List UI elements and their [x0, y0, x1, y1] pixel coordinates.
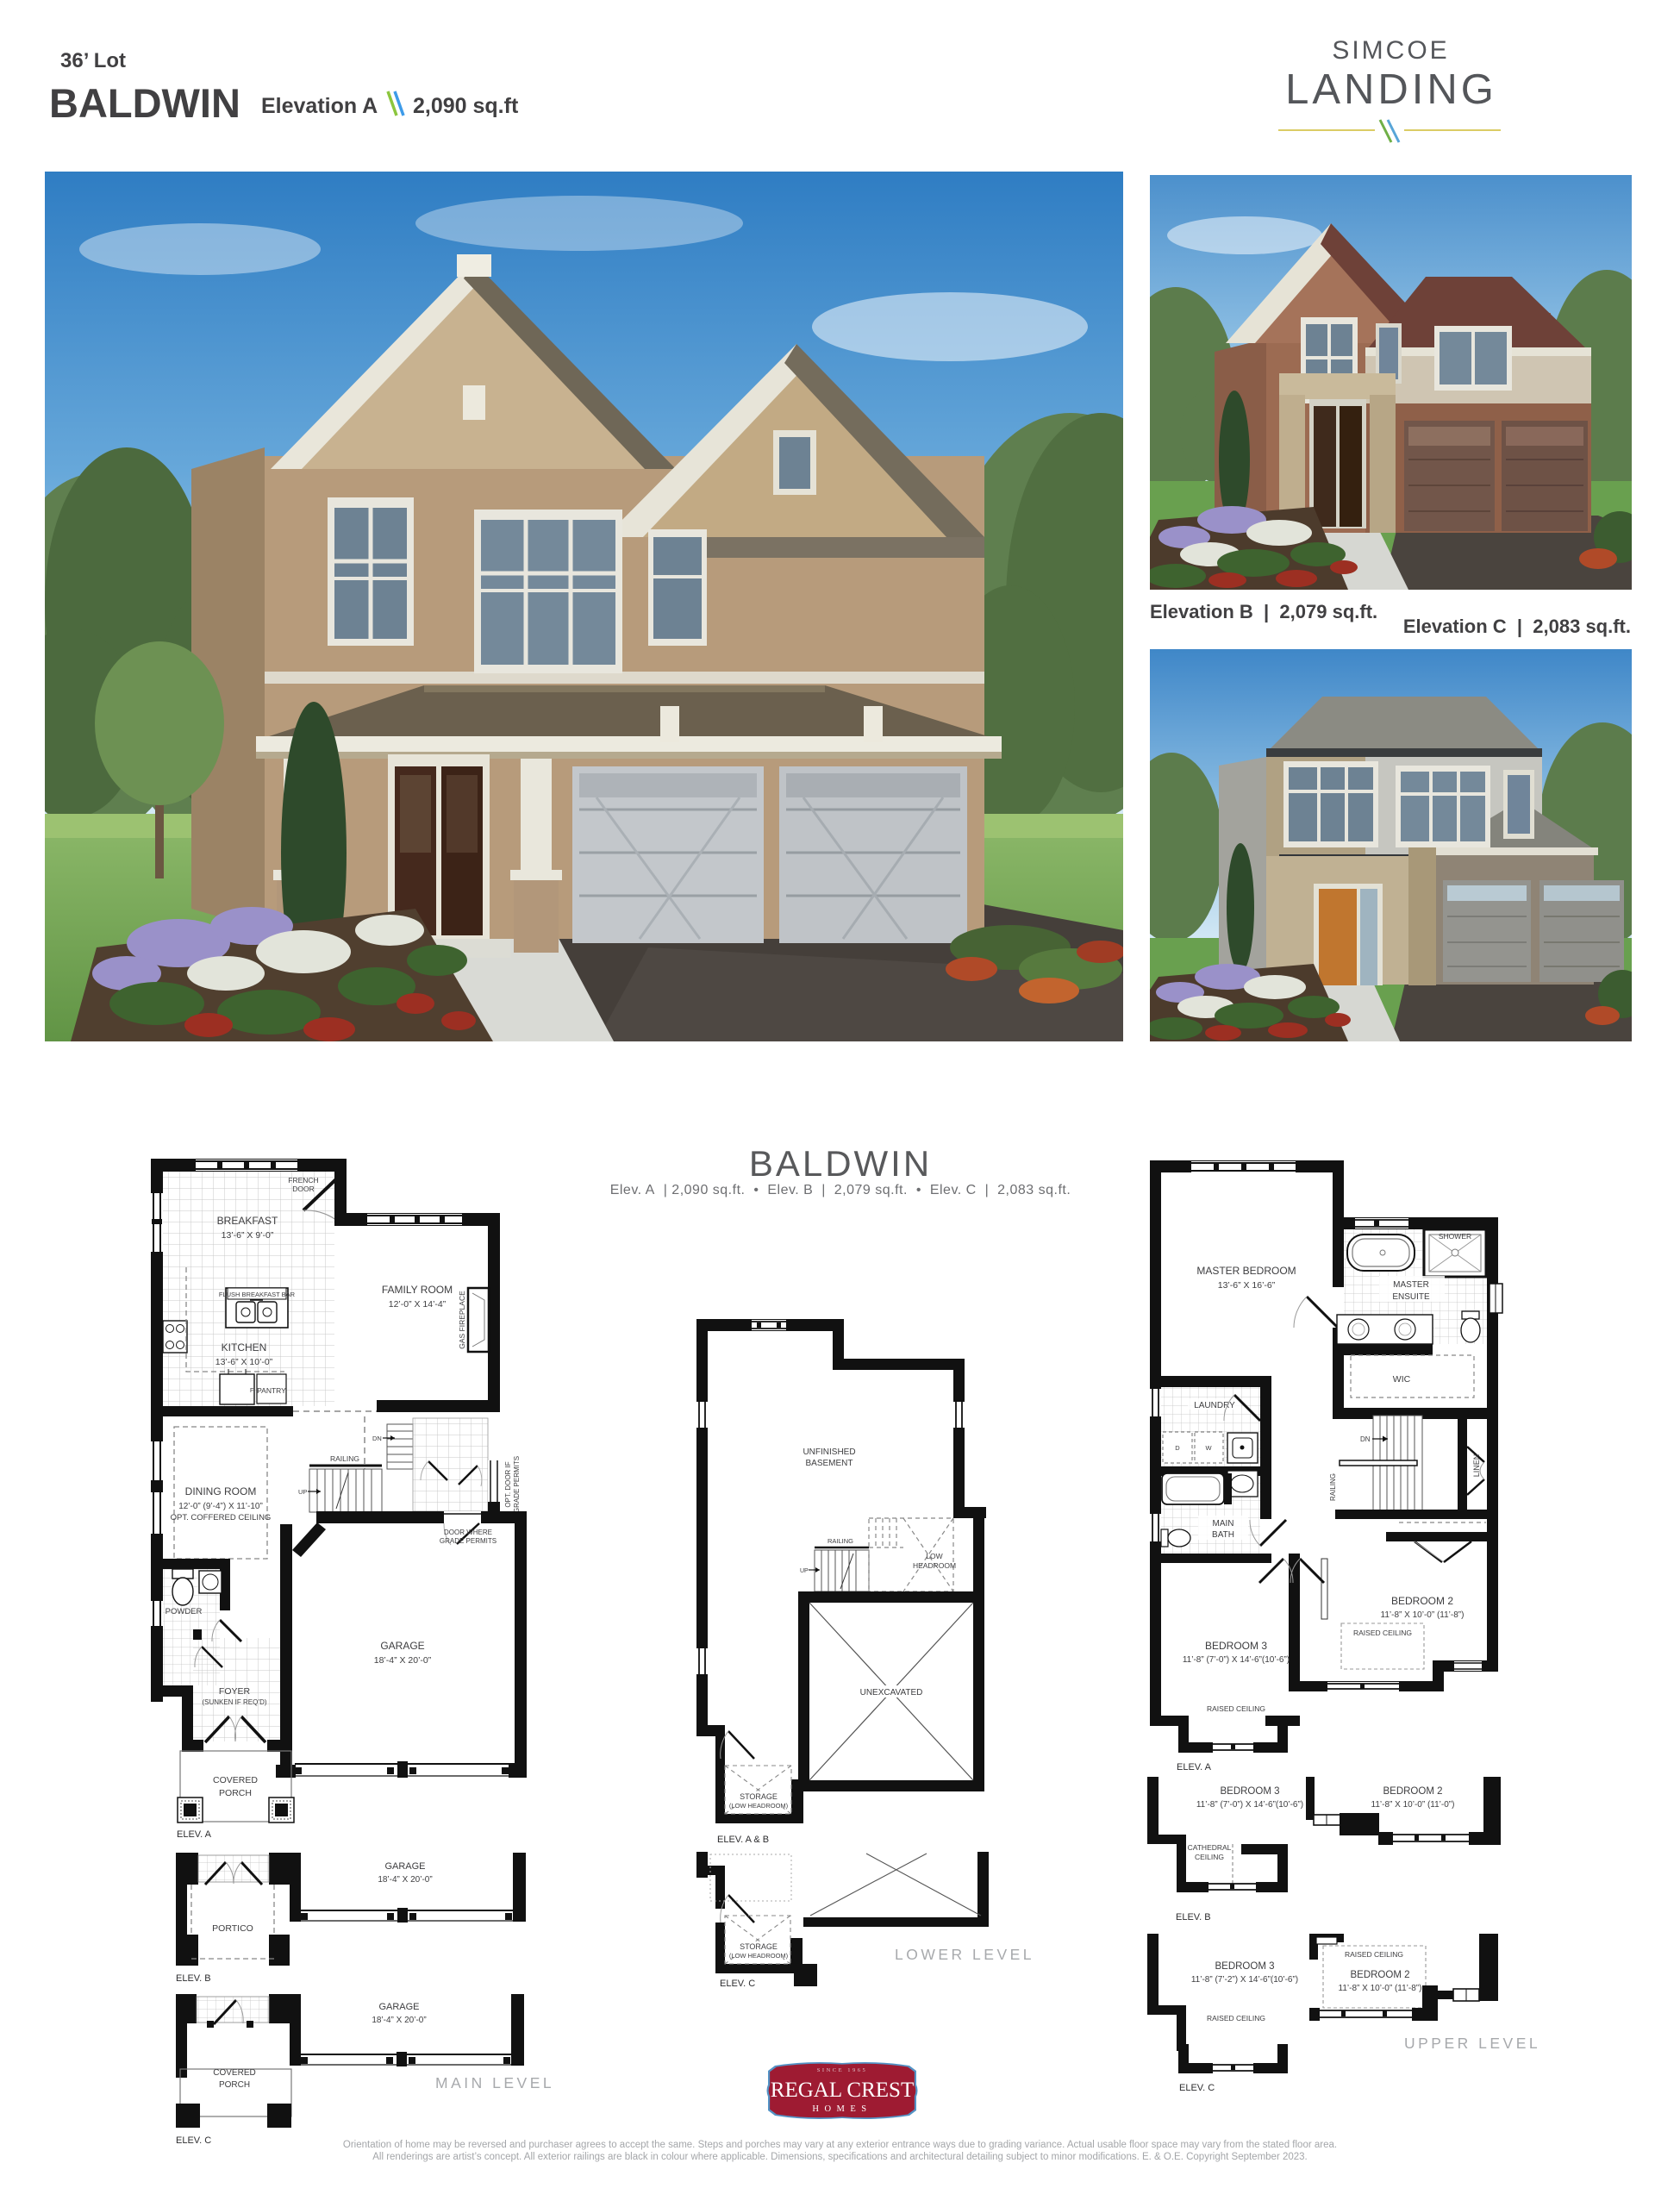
svg-text:GARAGE: GARAGE	[384, 1861, 425, 1872]
svg-text:12’-0” X 14’-4”: 12’-0” X 14’-4”	[389, 1299, 447, 1310]
svg-text:DN: DN	[372, 1435, 382, 1442]
svg-text:LINEN: LINEN	[1472, 1454, 1481, 1478]
svg-text:UNFINISHED: UNFINISHED	[803, 1447, 855, 1457]
svg-text:MASTER: MASTER	[1393, 1280, 1429, 1290]
svg-text:LOW: LOW	[926, 1552, 942, 1560]
svg-text:PORTICO: PORTICO	[212, 1923, 253, 1934]
svg-text:ENSUITE: ENSUITE	[1392, 1292, 1430, 1302]
svg-text:BEDROOM 3: BEDROOM 3	[1215, 1961, 1274, 1972]
svg-text:11’-8” X 10’-0” (11’-8”): 11’-8” X 10’-0” (11’-8”)	[1381, 1610, 1465, 1620]
svg-text:DINING ROOM: DINING ROOM	[185, 1485, 257, 1497]
svg-text:STORAGE: STORAGE	[740, 1792, 778, 1801]
svg-text:18’-4” X 20’-0”: 18’-4” X 20’-0”	[372, 2016, 426, 2025]
svg-text:COVERED: COVERED	[213, 1775, 258, 1785]
svg-text:REGAL CREST: REGAL CREST	[771, 2079, 914, 2102]
svg-text:POWDER: POWDER	[166, 1607, 203, 1616]
svg-text:RAILING: RAILING	[330, 1454, 359, 1463]
svg-text:DN: DN	[1360, 1435, 1371, 1443]
svg-text:PORCH: PORCH	[219, 2080, 250, 2090]
svg-text:STORAGE: STORAGE	[740, 1942, 778, 1951]
svg-text:RAISED CEILING: RAISED CEILING	[1207, 2014, 1265, 2023]
svg-text:COVERED: COVERED	[213, 2068, 255, 2078]
svg-text:12’-0” (9’-4”) X 11’-10”: 12’-0” (9’-4”) X 11’-10”	[178, 1502, 263, 1511]
svg-text:LAUNDRY: LAUNDRY	[1194, 1401, 1235, 1410]
svg-text:BREAKFAST: BREAKFAST	[217, 1215, 278, 1227]
svg-text:FRENCH: FRENCH	[288, 1176, 318, 1185]
svg-text:11’-8” (7’-2”) X 14’-6”(10’-6: 11’-8” (7’-2”) X 14’-6”(10’-6”)	[1191, 1975, 1298, 1985]
svg-text:ELEV. A: ELEV. A	[177, 1829, 212, 1840]
svg-text:18’-4” X 20’-0”: 18’-4” X 20’-0”	[378, 1875, 432, 1885]
svg-text:OPT. COFFERED CEILING: OPT. COFFERED CEILING	[171, 1513, 272, 1522]
svg-text:11’-8” (7’-0”) X 14’-6”(10’-6: 11’-8” (7’-0”) X 14’-6”(10’-6”)	[1183, 1655, 1290, 1665]
svg-text:11’-8” X 10’-0” (11’-0”): 11’-8” X 10’-0” (11’-0”)	[1371, 1800, 1455, 1810]
svg-text:RAISED CEILING: RAISED CEILING	[1353, 1629, 1412, 1637]
svg-text:CEILING: CEILING	[1195, 1853, 1224, 1861]
svg-text:ELEV. A & B: ELEV. A & B	[717, 1835, 769, 1845]
svg-text:RAILING: RAILING	[1329, 1473, 1337, 1501]
svg-text:SINCE 1965: SINCE 1965	[817, 2067, 867, 2073]
svg-text:DOOR: DOOR	[292, 1185, 315, 1193]
svg-text:13’-6” X 10’-0”: 13’-6” X 10’-0”	[215, 1357, 273, 1367]
svg-text:BEDROOM 2: BEDROOM 2	[1383, 1786, 1442, 1797]
svg-text:UNEXCAVATED: UNEXCAVATED	[860, 1688, 923, 1697]
svg-text:(LOW HEADROOM): (LOW HEADROOM)	[729, 1802, 789, 1810]
svg-text:GRADE PERMITS: GRADE PERMITS	[440, 1537, 497, 1545]
svg-text:D: D	[1175, 1444, 1180, 1452]
svg-text:ELEV. C: ELEV. C	[176, 2135, 211, 2146]
svg-text:13’-6” X 9’-0”: 13’-6” X 9’-0”	[222, 1230, 274, 1241]
svg-text:BEDROOM 2: BEDROOM 2	[1391, 1595, 1453, 1607]
svg-text:PORCH: PORCH	[219, 1788, 252, 1798]
svg-text:HOMES: HOMES	[812, 2104, 871, 2114]
svg-text:WIC: WIC	[1393, 1374, 1411, 1385]
svg-text:(LOW HEADROOM): (LOW HEADROOM)	[729, 1952, 789, 1960]
svg-text:OPT. DOOR IF: OPT. DOOR IF	[504, 1461, 512, 1507]
svg-text:GARAGE: GARAGE	[378, 2002, 419, 2012]
svg-text:BEDROOM 3: BEDROOM 3	[1220, 1786, 1279, 1797]
svg-text:ELEV. C: ELEV. C	[1179, 2083, 1215, 2093]
svg-text:RAISED CEILING: RAISED CEILING	[1207, 1704, 1265, 1713]
svg-text:KITCHEN: KITCHEN	[222, 1341, 267, 1354]
svg-text:DOOR WHERE: DOOR WHERE	[444, 1529, 492, 1536]
svg-text:(SUNKEN IF REQ’D): (SUNKEN IF REQ’D)	[202, 1698, 266, 1706]
svg-text:RAISED CEILING: RAISED CEILING	[1345, 1950, 1403, 1959]
svg-text:PANTRY: PANTRY	[257, 1386, 286, 1395]
svg-text:GRADE PERMITS: GRADE PERMITS	[513, 1456, 521, 1513]
svg-text:GARAGE: GARAGE	[380, 1640, 424, 1652]
svg-text:MASTER BEDROOM: MASTER BEDROOM	[1196, 1265, 1296, 1277]
svg-text:F: F	[250, 1388, 253, 1394]
svg-text:ELEV. B: ELEV. B	[1176, 1912, 1211, 1923]
svg-text:FAMILY ROOM: FAMILY ROOM	[382, 1284, 453, 1296]
svg-text:11’-8” (7’-0”) X 14’-6”(10’-6: 11’-8” (7’-0”) X 14’-6”(10’-6”)	[1196, 1800, 1303, 1810]
svg-text:UP: UP	[800, 1568, 809, 1574]
svg-text:GAS FIREPLACE: GAS FIREPLACE	[458, 1291, 466, 1349]
svg-text:UP: UP	[298, 1488, 307, 1496]
svg-text:W: W	[1205, 1444, 1212, 1452]
svg-text:FOYER: FOYER	[219, 1686, 251, 1697]
svg-text:MAIN: MAIN	[1213, 1519, 1234, 1529]
svg-text:11’-8” X 10’-0” (11’-8”): 11’-8” X 10’-0” (11’-8”)	[1339, 1984, 1422, 1993]
svg-text:CATHEDRAL: CATHEDRAL	[1188, 1843, 1232, 1852]
svg-text:ELEV. C: ELEV. C	[720, 1979, 755, 1989]
svg-text:BEDROOM 2: BEDROOM 2	[1350, 1970, 1409, 1980]
svg-text:ELEV. A: ELEV. A	[1177, 1762, 1212, 1772]
svg-text:RAILING: RAILING	[828, 1537, 853, 1545]
svg-text:BATH: BATH	[1212, 1530, 1234, 1540]
svg-text:SHOWER: SHOWER	[1439, 1232, 1471, 1241]
svg-text:ELEV. B: ELEV. B	[176, 1973, 211, 1984]
svg-text:FLUSH BREAKFAST BAR: FLUSH BREAKFAST BAR	[219, 1291, 296, 1298]
svg-text:13’-6” X 16’-6”: 13’-6” X 16’-6”	[1218, 1280, 1276, 1291]
svg-text:HEADROOM: HEADROOM	[913, 1561, 956, 1570]
svg-text:BASEMENT: BASEMENT	[805, 1459, 852, 1468]
svg-text:18’-4” X 20’-0”: 18’-4” X 20’-0”	[374, 1655, 432, 1666]
svg-text:BEDROOM 3: BEDROOM 3	[1205, 1640, 1267, 1652]
